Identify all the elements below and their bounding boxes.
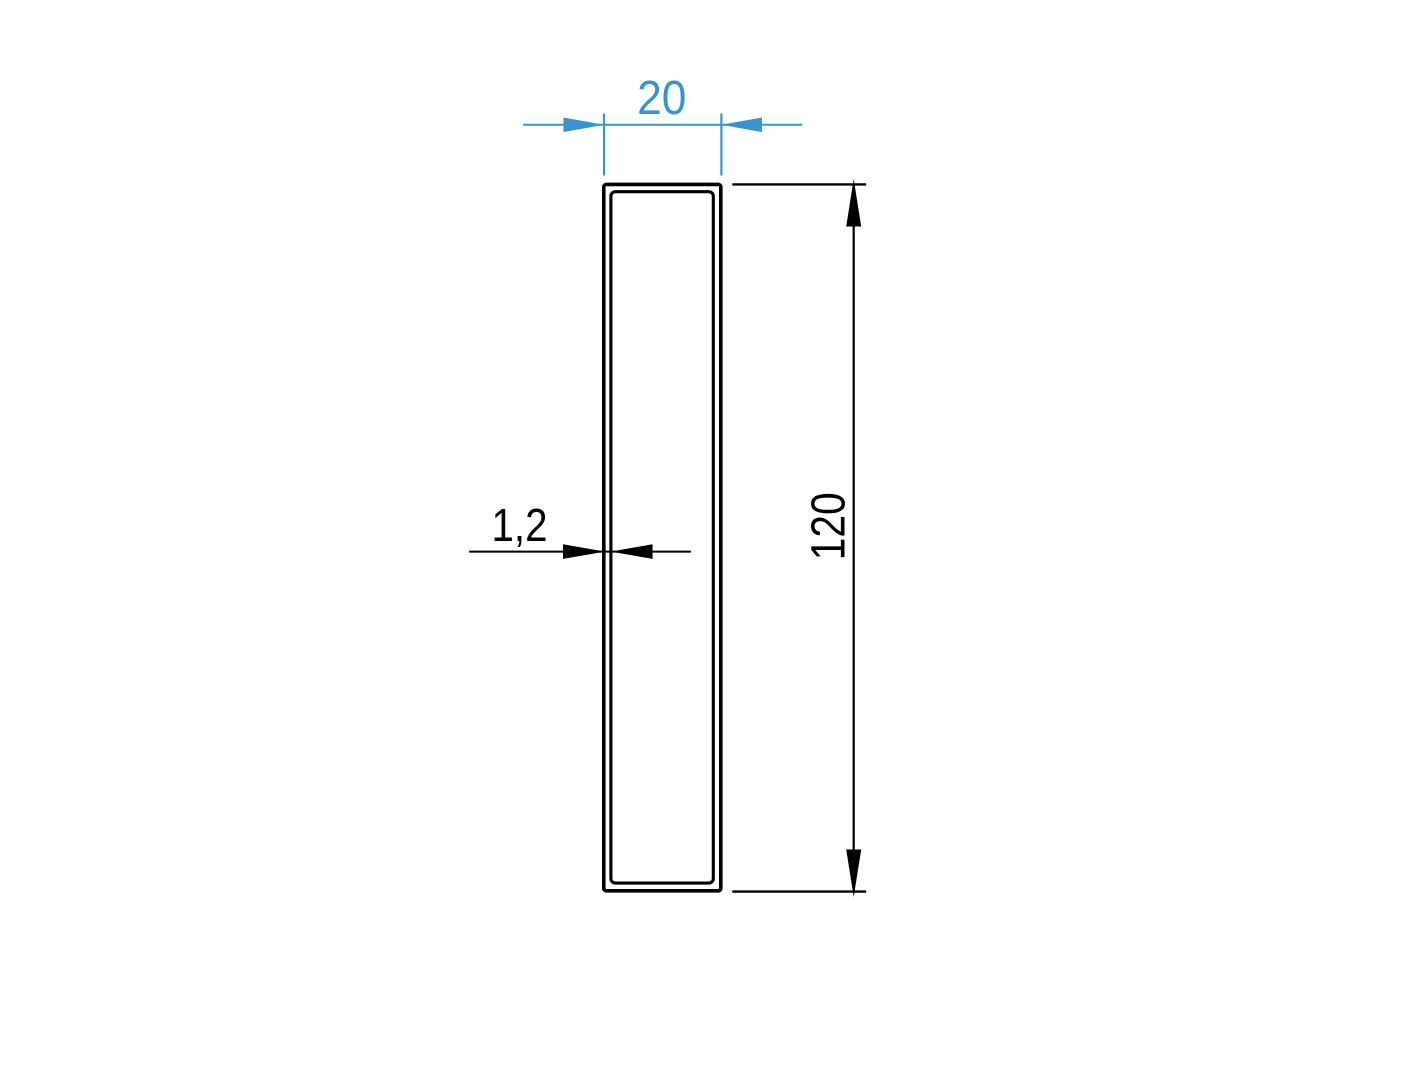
svg-text:120: 120 (802, 492, 855, 560)
svg-text:20: 20 (637, 71, 686, 125)
svg-text:1,2: 1,2 (492, 499, 548, 551)
